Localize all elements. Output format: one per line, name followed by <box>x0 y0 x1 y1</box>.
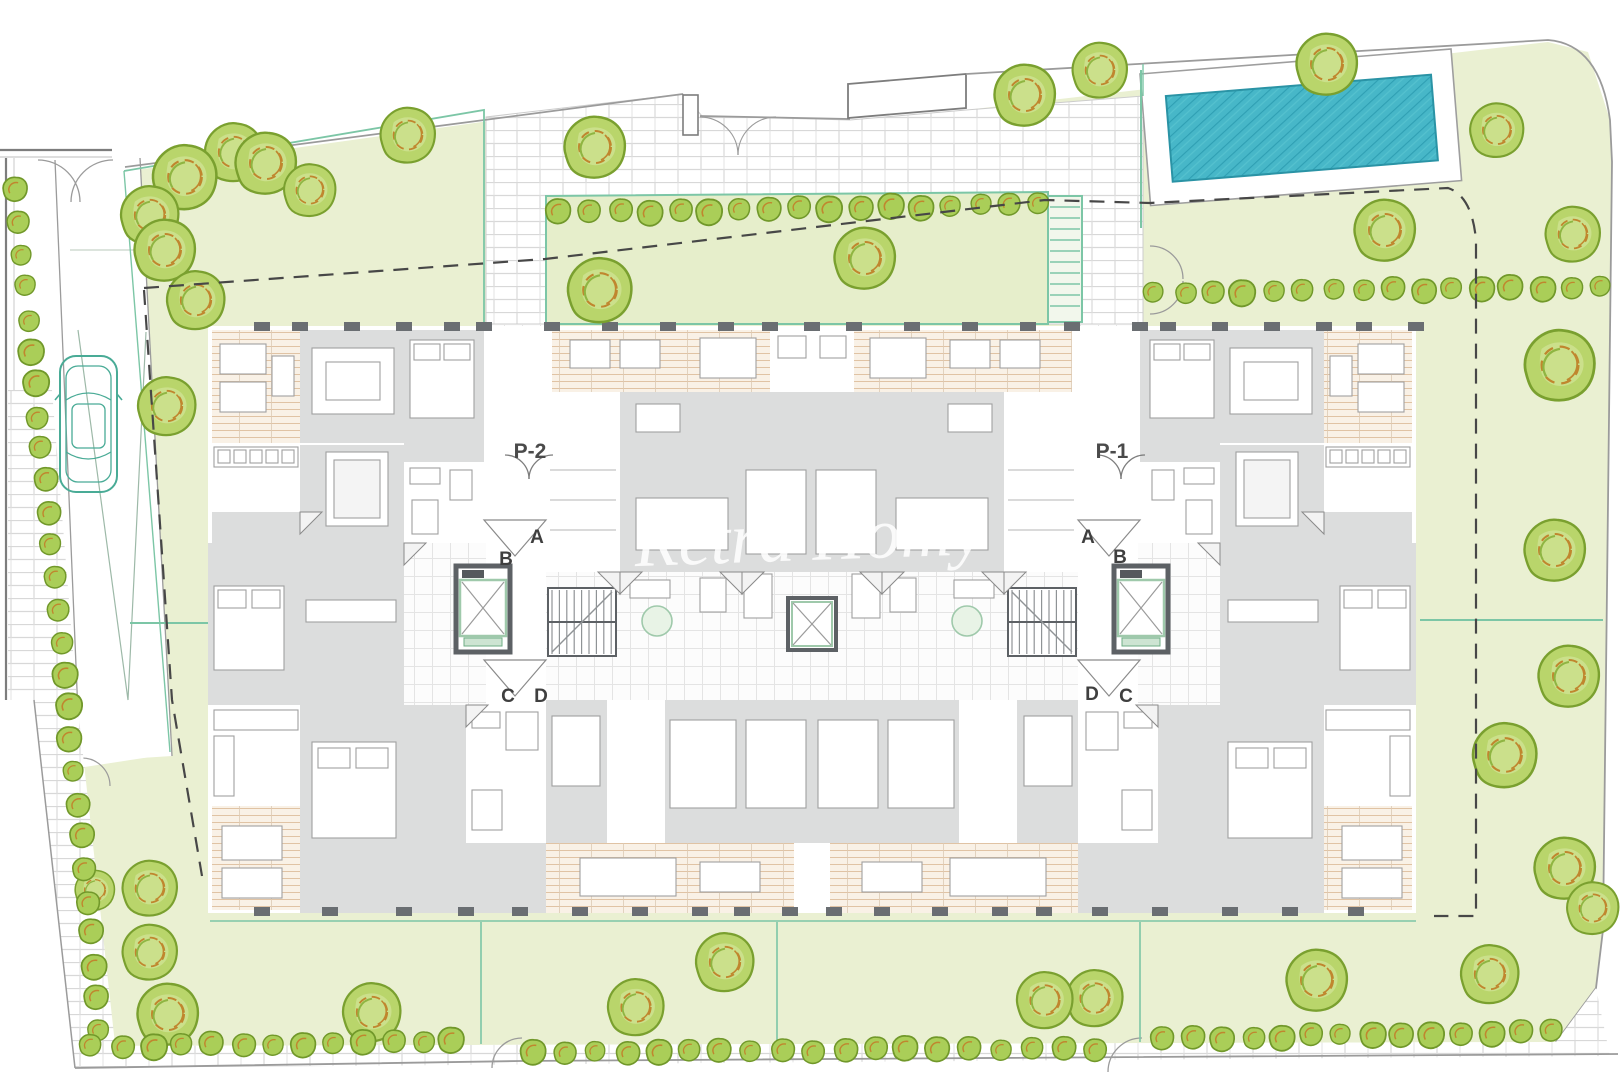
svg-text:P-1: P-1 <box>1096 440 1129 463</box>
svg-text:Retra Homy: Retra Homy <box>632 490 986 582</box>
svg-text:D: D <box>1085 684 1099 705</box>
svg-text:A: A <box>1081 527 1095 548</box>
svg-text:A: A <box>530 527 544 548</box>
svg-text:C: C <box>501 686 515 707</box>
svg-text:P-2: P-2 <box>514 440 547 463</box>
svg-text:B: B <box>1113 547 1127 568</box>
svg-text:D: D <box>534 686 548 707</box>
svg-text:B: B <box>499 549 513 570</box>
svg-text:C: C <box>1119 686 1133 707</box>
